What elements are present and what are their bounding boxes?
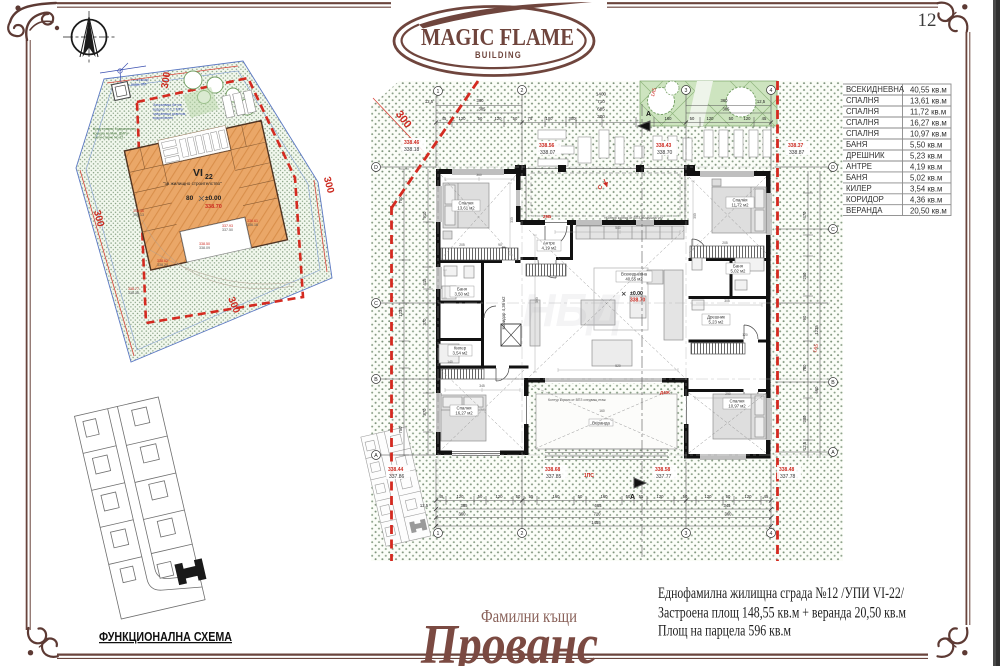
svg-text:338.37: 338.37 [788, 143, 804, 149]
svg-text:685: 685 [597, 107, 605, 112]
svg-text:части старче Nо 22: части старче Nо 22 [93, 136, 123, 140]
svg-text:120: 120 [459, 116, 467, 121]
svg-text:40,55 м2: 40,55 м2 [625, 277, 643, 282]
svg-text:160: 160 [601, 494, 609, 499]
svg-text:780: 780 [802, 364, 807, 372]
svg-text:338.68: 338.68 [545, 467, 561, 473]
svg-text:C: C [831, 227, 835, 233]
svg-text:D: D [374, 165, 378, 171]
svg-text:50: 50 [690, 116, 695, 121]
svg-text:120: 120 [657, 494, 665, 499]
svg-text:ФУНКЦИОНАЛНА СХЕМА: ФУНКЦИОНАЛНА СХЕМА [99, 630, 232, 644]
svg-text:336.16: 336.16 [247, 223, 258, 227]
svg-text:КОРИДОР: КОРИДОР [846, 195, 884, 204]
svg-text:КИЛЕР: КИЛЕР [846, 184, 872, 193]
svg-text:120: 120 [707, 116, 715, 121]
svg-text:3,50 м2: 3,50 м2 [455, 292, 471, 297]
svg-text:338.46: 338.46 [404, 140, 420, 146]
svg-text:385: 385 [461, 503, 469, 508]
svg-text:205: 205 [459, 243, 465, 247]
svg-text:338.70: 338.70 [657, 150, 673, 156]
svg-text:Площ на парцела 596 кв.м: Площ на парцела 596 кв.м [658, 623, 791, 640]
svg-text:B: B [831, 380, 835, 386]
svg-text:385: 385 [479, 107, 487, 112]
svg-text:338.36: 338.36 [128, 291, 139, 295]
svg-text:50: 50 [726, 494, 731, 499]
svg-text:338.18: 338.18 [404, 147, 420, 153]
svg-text:160: 160 [599, 409, 605, 413]
svg-text:338.70: 338.70 [630, 298, 646, 304]
svg-text:870: 870 [422, 408, 427, 416]
svg-text:80: 80 [186, 195, 194, 202]
svg-text:120: 120 [742, 333, 748, 337]
svg-text:710: 710 [597, 99, 605, 104]
svg-text:50: 50 [516, 494, 521, 499]
svg-text:290: 290 [725, 392, 731, 396]
svg-text:Захранващ битов: Захранващ битов [153, 103, 182, 107]
svg-text:300: 300 [597, 114, 605, 119]
svg-text:захранващ довотом,: захранващ довотом, [153, 112, 186, 116]
svg-text:водопр. Р-1,1 МРа: водопр. Р-1,1 МРа [153, 107, 183, 111]
svg-text:БАНЯ: БАНЯ [846, 173, 867, 182]
svg-text:338.13: 338.13 [133, 213, 144, 217]
svg-text:50: 50 [729, 116, 734, 121]
svg-text:4,36 кв.м: 4,36 кв.м [910, 196, 942, 205]
svg-text:338.58: 338.58 [655, 467, 671, 473]
svg-text:1235: 1235 [814, 325, 819, 335]
svg-text:5,23 кв.м: 5,23 кв.м [910, 152, 942, 161]
svg-text:ВСЕКИДНЕВНА: ВСЕКИДНЕВНА [846, 85, 905, 94]
svg-text:1ПС: 1ПС [584, 473, 594, 479]
svg-text:75: 75 [528, 116, 533, 121]
svg-text:300: 300 [693, 213, 697, 219]
svg-text:660: 660 [814, 386, 819, 394]
svg-text:4,19 кв.м: 4,19 кв.м [910, 163, 942, 172]
svg-text:10,97 кв.м: 10,97 кв.м [910, 130, 947, 139]
svg-text:590: 590 [535, 297, 539, 303]
svg-text:360: 360 [725, 512, 733, 517]
svg-text:50: 50 [478, 494, 483, 499]
svg-text:337.78: 337.78 [780, 474, 796, 480]
svg-text:380: 380 [802, 415, 807, 423]
svg-text:385: 385 [723, 107, 731, 112]
svg-text:5,50 кв.м: 5,50 кв.м [910, 141, 942, 150]
svg-text:415: 415 [422, 278, 427, 286]
svg-text:55: 55 [529, 494, 534, 499]
svg-text:22: 22 [205, 174, 213, 181]
svg-text:±0.00: ±0.00 [630, 291, 643, 297]
svg-text:1: 1 [437, 89, 440, 95]
svg-text:D: D [831, 165, 835, 171]
svg-text:338.70: 338.70 [205, 204, 222, 210]
svg-text:50: 50 [513, 116, 518, 121]
svg-text:3: 3 [685, 531, 688, 537]
svg-text:BUILDING: BUILDING [475, 50, 522, 61]
svg-text:А: А [630, 494, 635, 501]
svg-text:338.07: 338.07 [540, 150, 556, 156]
svg-text:2: 2 [521, 531, 524, 537]
svg-text:5,02 м2: 5,02 м2 [731, 269, 747, 274]
svg-text:338.56: 338.56 [539, 143, 555, 149]
svg-text:337.86: 337.86 [389, 474, 405, 480]
svg-text:10,97 м2: 10,97 м2 [728, 404, 746, 409]
svg-text:Застроена площ 148,55 кв.м + в: Застроена площ 148,55 кв.м + веранда 20,… [658, 605, 906, 622]
svg-text:20,50 кв.м: 20,50 кв.м [910, 207, 947, 216]
svg-text:120: 120 [745, 494, 753, 499]
svg-text:C: C [374, 301, 378, 307]
svg-text:337.85: 337.85 [546, 474, 562, 480]
svg-text:3: 3 [685, 88, 688, 94]
svg-text:360: 360 [477, 98, 485, 103]
svg-text:370: 370 [422, 318, 427, 326]
svg-text:A: A [831, 450, 835, 456]
svg-text:710: 710 [594, 512, 602, 517]
svg-text:4: 4 [770, 88, 773, 94]
svg-text:5,02 кв.м: 5,02 кв.м [910, 174, 942, 183]
svg-text:338.48: 338.48 [779, 467, 795, 473]
svg-text:1: 1 [437, 531, 440, 537]
svg-text:338.09: 338.09 [199, 246, 210, 250]
svg-text:13,61 м2: 13,61 м2 [457, 206, 475, 211]
svg-text:Еднофамилна жилищна сграда №12: Еднофамилна жилищна сграда №12 /УПИ VI-2… [658, 585, 904, 602]
svg-text:Прованс: Прованс [420, 614, 598, 666]
svg-text:685: 685 [595, 503, 603, 508]
svg-text:338.44: 338.44 [388, 467, 404, 473]
svg-text:540: 540 [615, 226, 621, 230]
svg-text:50: 50 [478, 116, 483, 121]
svg-text:40,55 кв.м: 40,55 кв.м [910, 86, 947, 95]
svg-text:750: 750 [398, 426, 403, 434]
svg-text:Д4Ж: Д4Ж [660, 390, 671, 395]
svg-text:120: 120 [744, 116, 752, 121]
svg-text:50: 50 [683, 494, 688, 499]
svg-text:11,72 кв.м: 11,72 кв.м [910, 108, 946, 117]
svg-text:12: 12 [918, 10, 937, 31]
svg-text:120: 120 [705, 494, 713, 499]
svg-text:1400: 1400 [596, 92, 607, 97]
svg-text:водообемен: водообемен [153, 116, 173, 120]
svg-text:Контур корниз от ВПЗ следващ е: Контур корниз от ВПЗ следващ етаж [548, 398, 606, 402]
svg-text:338.87: 338.87 [789, 150, 805, 156]
svg-text:120: 120 [495, 116, 503, 121]
svg-text:360: 360 [476, 173, 482, 177]
svg-text:300: 300 [569, 116, 577, 121]
svg-text:3,54 м2: 3,54 м2 [453, 351, 469, 356]
svg-text:13,61 кв.м: 13,61 кв.м [910, 97, 947, 106]
svg-text:120: 120 [496, 494, 504, 499]
svg-text:16,27 кв.м: 16,27 кв.м [910, 119, 947, 128]
svg-text:345: 345 [724, 503, 732, 508]
svg-text:12,5: 12,5 [757, 99, 766, 104]
svg-text:вода, 3М: вода, 3М [131, 83, 146, 87]
svg-text:360: 360 [459, 512, 467, 517]
svg-text:50: 50 [578, 494, 583, 499]
svg-text:БАНЯ: БАНЯ [846, 140, 867, 149]
svg-text:90: 90 [498, 243, 502, 247]
svg-text:1455: 1455 [591, 520, 601, 525]
svg-text:ВЕРАНДА: ВЕРАНДА [846, 206, 883, 215]
svg-text:250: 250 [802, 272, 807, 280]
svg-text:АНТРЕ: АНТРЕ [846, 162, 872, 171]
svg-text:НБД: НБД [522, 284, 622, 336]
svg-text:90: 90 [802, 315, 807, 320]
svg-text:4: 4 [770, 531, 773, 537]
svg-text:11,72 м2: 11,72 м2 [732, 203, 750, 208]
svg-text:12,5: 12,5 [802, 441, 807, 450]
svg-text:2: 2 [521, 88, 524, 94]
svg-text:338.24: 338.24 [157, 263, 168, 267]
svg-text:Коридор 4,36 м2: Коридор 4,36 м2 [501, 296, 506, 330]
svg-text:45: 45 [764, 494, 769, 499]
svg-text:MAGIC FLAME: MAGIC FLAME [421, 25, 574, 51]
svg-text:12,5: 12,5 [425, 99, 434, 104]
svg-text:520: 520 [615, 364, 621, 368]
svg-text:140: 140 [447, 360, 453, 364]
svg-text:470: 470 [802, 211, 807, 219]
svg-text:45: 45 [762, 116, 767, 121]
svg-text:205: 205 [722, 241, 728, 245]
svg-text:СПАЛНЯ: СПАЛНЯ [846, 107, 879, 116]
svg-text:СПАЛНЯ: СПАЛНЯ [846, 96, 879, 105]
svg-text:55: 55 [639, 494, 644, 499]
svg-text:3,54 кв.м: 3,54 кв.м [910, 185, 942, 194]
svg-text:45: 45 [439, 494, 444, 499]
svg-text:"за жилищно строителство": "за жилищно строителство" [163, 181, 222, 186]
svg-text:А: А [646, 111, 651, 118]
svg-text:337.50: 337.50 [222, 228, 233, 232]
svg-text:VI: VI [193, 167, 203, 179]
svg-text:360: 360 [721, 98, 729, 103]
svg-text:45: 45 [442, 116, 447, 121]
svg-text:29Б: 29Б [543, 214, 552, 219]
svg-text:ДРЕШНИК: ДРЕШНИК [846, 151, 885, 160]
svg-text:СПАЛНЯ: СПАЛНЯ [846, 118, 879, 127]
svg-text:4,19 м2: 4,19 м2 [542, 246, 558, 251]
svg-text:1235: 1235 [398, 307, 403, 317]
svg-text:100: 100 [546, 116, 554, 121]
svg-text:12,5: 12,5 [420, 503, 429, 508]
svg-text:A: A [374, 453, 378, 459]
svg-text:16,27 м2: 16,27 м2 [455, 411, 473, 416]
svg-text:160: 160 [665, 116, 673, 121]
svg-text:160: 160 [553, 494, 561, 499]
svg-text:345: 345 [479, 384, 485, 388]
svg-text:330: 330 [510, 217, 514, 223]
svg-text:СПАЛНЯ: СПАЛНЯ [846, 129, 879, 138]
svg-text:50: 50 [626, 494, 631, 499]
svg-text:337.77: 337.77 [656, 474, 672, 480]
svg-text:910: 910 [422, 211, 427, 219]
svg-text:±0.00: ±0.00 [205, 195, 222, 202]
svg-text:305: 305 [724, 299, 730, 303]
svg-text:B: B [374, 377, 378, 383]
svg-text:120: 120 [457, 494, 465, 499]
svg-text:338.43: 338.43 [656, 143, 672, 149]
svg-text:5,23 м2: 5,23 м2 [709, 320, 725, 325]
svg-text:«Контур корниз от ВПЗ въздушна: «Контур корниз от ВПЗ въздушна ул» [604, 216, 663, 220]
